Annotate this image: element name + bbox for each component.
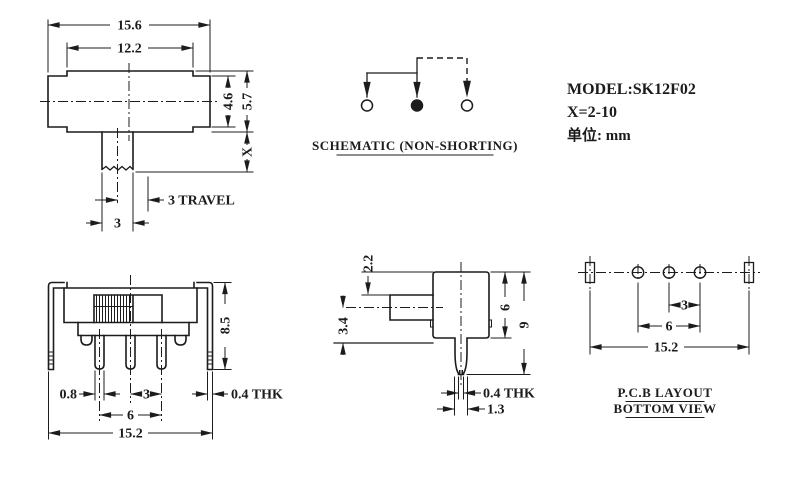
unit-note: 单位: mm bbox=[567, 126, 631, 144]
dim-label-bracket-thickness: 0.4 THK bbox=[231, 388, 283, 403]
front-view-plate-hooks bbox=[81, 336, 186, 346]
dim-label-top-clearance: 2.2 bbox=[362, 255, 377, 273]
drawing-sheet: 15.6 12.2 4.6 5.7 X 3 TRAVEL 3 SCHEMATIC… bbox=[0, 0, 800, 480]
dim-label-center-height: 5.7 bbox=[241, 93, 256, 111]
side-view: 2.2 3.4 6 9 0.4 THK 1.3 bbox=[334, 255, 535, 418]
pcb-title-line1: P.C.B LAYOUT bbox=[618, 385, 713, 400]
dim-label-travel: 3 TRAVEL bbox=[168, 194, 235, 209]
dim-label-overall-width: 15.2 bbox=[118, 427, 143, 442]
dim-label-pin-width: 0.8 bbox=[60, 388, 78, 403]
terminal-open-left bbox=[362, 100, 373, 111]
front-view: 8.5 0.8 3 6 15.2 0.4 THK bbox=[49, 275, 283, 442]
front-view-base-plate bbox=[78, 323, 189, 336]
dim-label-pin-span: 6 bbox=[127, 409, 134, 424]
top-view-centerlines bbox=[40, 63, 217, 203]
dim-label-body-height: 6 bbox=[499, 304, 514, 311]
dim-label-stem-center-height: 3.4 bbox=[337, 317, 352, 335]
dim-label-overall-height: 9 bbox=[518, 322, 533, 329]
schematic-view: SCHEMATIC (NON-SHORTING) bbox=[312, 58, 518, 155]
info-block: MODEL:SK12F02 X=2-10 单位: mm bbox=[567, 81, 696, 144]
dim-label-stem-width: 3 bbox=[114, 217, 121, 232]
dim-label-pin-root-width: 1.3 bbox=[487, 403, 505, 418]
front-view-knob-frame bbox=[94, 295, 162, 323]
side-view-centerlines bbox=[346, 262, 461, 385]
x-range: X=2-10 bbox=[567, 104, 617, 121]
dim-label-hole-pitch: 3 bbox=[681, 299, 688, 314]
front-view-extension-lines bbox=[49, 283, 232, 440]
dim-label-side-height: 4.6 bbox=[222, 93, 237, 111]
dim-label-height: 8.5 bbox=[219, 317, 234, 335]
pcb-title-line2: BOTTOM VIEW bbox=[614, 401, 717, 416]
dim-label-pin-pitch: 3 bbox=[143, 388, 150, 403]
model-number: MODEL:SK12F02 bbox=[567, 81, 696, 98]
mechanical-drawing: 15.6 12.2 4.6 5.7 X 3 TRAVEL 3 SCHEMATIC… bbox=[0, 0, 800, 480]
dim-label-pin-thickness: 0.4 THK bbox=[483, 387, 535, 402]
pcb-view: 3 6 15.2 P.C.B LAYOUT BOTTOM VIEW bbox=[578, 256, 760, 418]
dim-label-overall-width: 15.6 bbox=[117, 19, 142, 34]
front-view-knob-knurling bbox=[94, 295, 133, 323]
dim-label-stem-height: X bbox=[241, 147, 256, 157]
dim-label-inner-width: 12.2 bbox=[117, 42, 142, 57]
terminal-open-right bbox=[462, 100, 473, 111]
dim-label-hole-span: 6 bbox=[666, 320, 673, 335]
dim-label-slot-span: 15.2 bbox=[654, 341, 679, 356]
schematic-title: SCHEMATIC (NON-SHORTING) bbox=[312, 138, 518, 153]
top-view: 15.6 12.2 4.6 5.7 X 3 TRAVEL 3 bbox=[40, 19, 256, 232]
terminal-common-filled bbox=[412, 100, 423, 111]
